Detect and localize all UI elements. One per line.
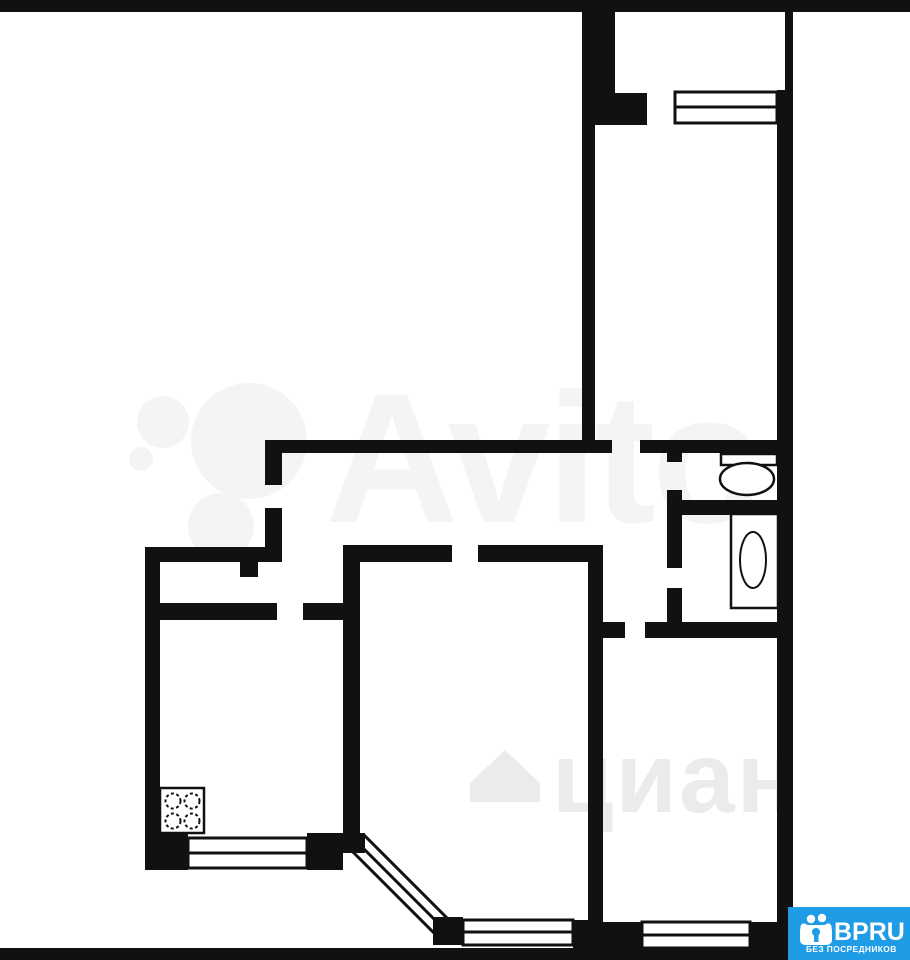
top-border-bar: [0, 0, 910, 12]
wall-segment: [145, 547, 160, 870]
wall-segment: [588, 545, 603, 933]
wall-segment: [307, 833, 343, 870]
wall-segment: [343, 545, 452, 562]
wall-segment: [145, 833, 188, 870]
wall-segment: [145, 603, 277, 620]
wall-segment: [785, 12, 793, 92]
logo-brand-text: BPRU: [834, 918, 905, 946]
wall-segment: [265, 440, 612, 453]
wall-segment: [588, 622, 625, 638]
wall-segment: [265, 508, 282, 548]
avito-logo-circle-icon: [129, 447, 153, 471]
wall-segment: [343, 545, 360, 840]
wall-segment: [265, 440, 282, 485]
floorplan-screenshot: Avito циан: [0, 0, 910, 960]
logo-tagline-text: БЕЗ ПОСРЕДНИКОВ: [806, 944, 897, 954]
wall-segment: [640, 440, 793, 453]
icon-keyhole-stem: [814, 934, 819, 942]
toilet-icon: [720, 454, 777, 495]
wall-segment: [667, 440, 682, 462]
icon-head: [807, 915, 815, 923]
stove-icon: [160, 788, 204, 833]
middle-room-window: [463, 920, 573, 945]
wall-segment: [667, 515, 682, 568]
wall-segment: [582, 125, 595, 440]
wall-segment: [145, 547, 282, 562]
wall-segment: [582, 93, 647, 125]
avito-watermark-text: Avito: [325, 356, 761, 562]
toilet-bowl: [720, 463, 774, 495]
wall-segment: [667, 588, 682, 622]
balcony-window: [675, 92, 777, 123]
wall-segment: [478, 545, 603, 562]
wall-segment: [582, 12, 615, 93]
wall-segment: [303, 603, 345, 620]
icon-head: [818, 914, 826, 922]
wall-segment: [645, 622, 782, 638]
floor-plan-image: Avito циан: [0, 0, 910, 960]
bathtub-icon: [731, 514, 778, 608]
wall-segment: [343, 833, 365, 853]
wall-segment: [603, 922, 642, 950]
right-room-window: [642, 922, 750, 948]
wall-segment: [240, 562, 258, 577]
avito-logo-circle-icon: [137, 396, 189, 448]
wall-segment: [573, 920, 603, 948]
bpru-logo: BPRU БЕЗ ПОСРЕДНИКОВ: [788, 907, 910, 960]
kitchen-window: [188, 838, 307, 868]
bathtub-rim: [731, 514, 778, 608]
